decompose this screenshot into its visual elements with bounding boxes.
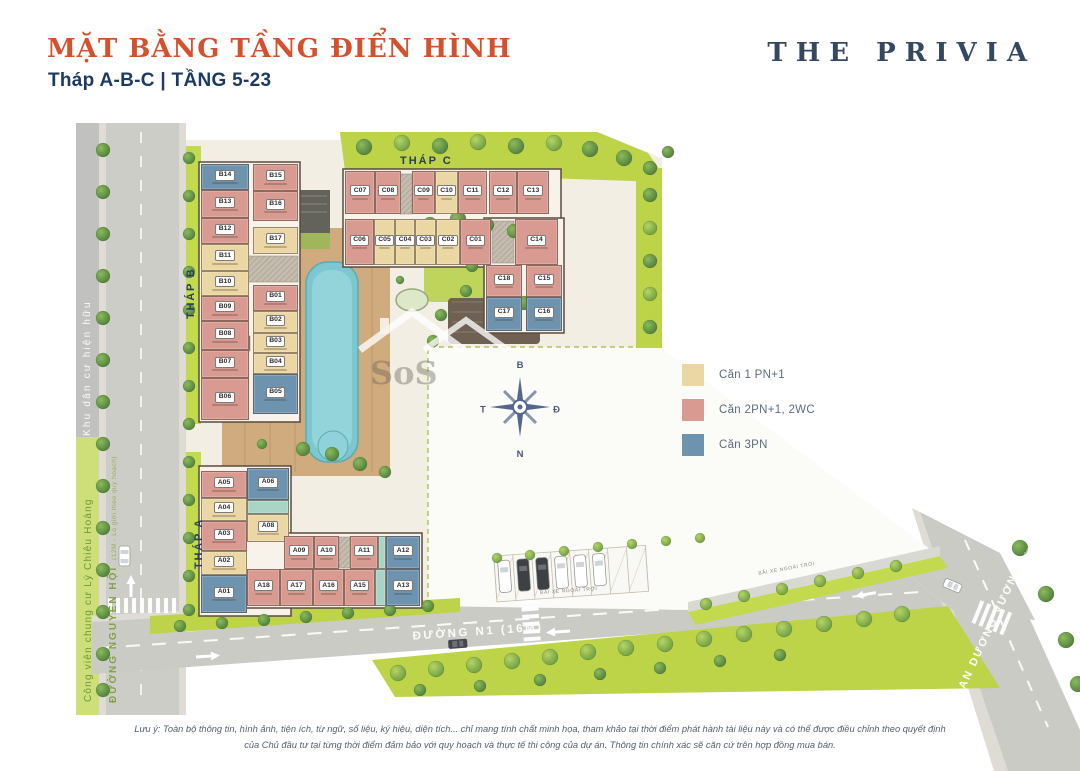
unit-label: B06 (215, 392, 234, 403)
unit-B10: B10 (201, 271, 249, 296)
unit-label: A03 (214, 529, 233, 540)
compass-west: T (480, 405, 486, 416)
unit-C03: C03 (415, 219, 436, 265)
unit-A06: A06 (247, 468, 289, 500)
unit-C02: C02 (436, 219, 460, 265)
watermark: SoS (350, 288, 530, 403)
unit-label: A06 (258, 477, 277, 488)
unit-label: C11 (463, 185, 482, 196)
unit-A17: A17 (280, 569, 313, 606)
unit-B04: B04 (253, 353, 298, 374)
unit-C08: C08 (375, 171, 401, 214)
unit-C05: C05 (374, 219, 395, 265)
unit-label: B03 (266, 336, 285, 347)
unit-C10: C10 (435, 171, 458, 214)
unit-label: B11 (215, 250, 234, 261)
unit-C09: C09 (412, 171, 435, 214)
legend-item-3pn: Căn 3PN (682, 434, 815, 456)
unit-label: A17 (287, 580, 306, 591)
unit-A11: A11 (350, 536, 378, 569)
unit-label: C18 (494, 274, 513, 285)
unit-label: C01 (466, 235, 485, 246)
unit-C15: C15 (526, 265, 562, 297)
unit-B15: B15 (253, 164, 298, 191)
unit-label: A04 (214, 502, 233, 513)
unit-label: B02 (266, 315, 285, 326)
unit-A16: A16 (313, 569, 344, 606)
unit-C01: C01 (460, 219, 491, 265)
unit-label: A09 (289, 545, 308, 556)
unit-label: B15 (266, 170, 285, 181)
legend-item-2pn: Căn 2PN+1, 2WC (682, 399, 815, 421)
unit-B13: B13 (201, 190, 249, 218)
unit-label: A08 (258, 521, 277, 532)
unit-C16: C16 (526, 297, 562, 331)
unit-label: B04 (266, 356, 285, 367)
disclaimer-line1: Lưu ý: Toàn bộ thông tin, hình ảnh, tiện… (0, 721, 1080, 737)
house-watermark-icon: SoS (350, 288, 530, 398)
unit-label: A13 (393, 580, 412, 591)
unit-label: A05 (214, 477, 233, 488)
unit-B11: B11 (201, 244, 249, 271)
unit-label: C08 (378, 185, 397, 196)
unit-label: C12 (493, 185, 512, 196)
unit-label: A01 (214, 587, 233, 598)
unit-label: A10 (317, 545, 336, 556)
unit-label: A16 (319, 580, 338, 591)
unit-label: B14 (215, 170, 234, 181)
unit-A12: A12 (386, 536, 420, 569)
unit-label: B08 (215, 328, 234, 339)
unit-label: A18 (254, 580, 273, 591)
unit-C14: C14 (515, 219, 558, 265)
unit-label: B10 (215, 276, 234, 287)
unit-A02: A02 (201, 551, 247, 575)
unit-A01: A01 (201, 575, 247, 613)
unit-label: B13 (215, 197, 234, 208)
unit-A13: A13 (386, 569, 420, 606)
unit-label: B16 (266, 199, 285, 210)
unit-B02: B02 (253, 311, 298, 333)
legend-swatch-1pn (682, 364, 704, 386)
unit-B12: B12 (201, 218, 249, 244)
unit-label: B01 (266, 291, 285, 302)
unit-garden (378, 536, 386, 569)
unit-label: B07 (215, 357, 234, 368)
unit-C04: C04 (395, 219, 415, 265)
unit-label: A02 (214, 556, 233, 567)
unit-B03: B03 (253, 333, 298, 353)
unit-label: C14 (527, 235, 546, 246)
unit-label: C10 (437, 185, 456, 196)
unit-A03: A03 (201, 521, 247, 551)
unit-garden (247, 500, 289, 514)
unit-B05: B05 (253, 374, 298, 414)
disclaimer: Lưu ý: Toàn bộ thông tin, hình ảnh, tiện… (0, 721, 1080, 754)
legend-swatch-2pn (682, 399, 704, 421)
unit-A04: A04 (201, 498, 247, 521)
disclaimer-line2: của Chủ đầu tư tại từng thời điểm đảm bả… (0, 737, 1080, 753)
unit-label: C03 (416, 235, 435, 246)
unit-label: C15 (534, 274, 553, 285)
unit-C11: C11 (458, 171, 487, 214)
unit-B07: B07 (201, 350, 249, 378)
unit-type-legend: Căn 1 PN+1 Căn 2PN+1, 2WC Căn 3PN (682, 364, 815, 469)
unit-label: C05 (375, 235, 394, 246)
unit-label: C06 (350, 235, 369, 246)
unit-A10: A10 (314, 536, 339, 569)
unit-A05: A05 (201, 471, 247, 498)
unit-label: C13 (523, 185, 542, 196)
unit-label: B17 (266, 233, 285, 244)
unit-label: A12 (393, 545, 412, 556)
unit-C13: C13 (517, 171, 549, 214)
unit-C12: C12 (489, 171, 517, 214)
unit-B08: B08 (201, 321, 249, 350)
unit-B09: B09 (201, 296, 249, 321)
unit-B17: B17 (253, 227, 298, 254)
unit-A09: A09 (284, 536, 314, 569)
legend-item-1pn: Căn 1 PN+1 (682, 364, 815, 386)
unit-label: C04 (395, 235, 414, 246)
unit-B16: B16 (253, 191, 298, 221)
watermark-text: SoS (370, 354, 438, 392)
unit-A15: A15 (344, 569, 375, 606)
unit-C06: C06 (345, 219, 374, 265)
unit-label: A15 (350, 580, 369, 591)
unit-garden (375, 569, 386, 606)
unit-label: B12 (215, 224, 234, 235)
unit-B01: B01 (253, 285, 298, 311)
compass-south: N (517, 449, 524, 460)
unit-label: C02 (438, 235, 457, 246)
unit-label: A11 (354, 545, 373, 556)
compass-east: Đ (553, 405, 560, 416)
unit-B14: B14 (201, 164, 249, 190)
floor-plan-page: MẶT BẰNG TẦNG ĐIỂN HÌNH Tháp A-B-C | TẦN… (0, 0, 1080, 771)
unit-label: B09 (215, 301, 234, 312)
unit-label: C09 (414, 185, 433, 196)
legend-swatch-3pn (682, 434, 704, 456)
unit-A18: A18 (247, 569, 280, 606)
unit-label: C16 (534, 307, 553, 318)
unit-A08: A08 (247, 514, 289, 542)
unit-label: B05 (266, 387, 285, 398)
unit-B06: B06 (201, 378, 249, 420)
unit-label: C07 (350, 185, 369, 196)
unit-C07: C07 (345, 171, 375, 214)
